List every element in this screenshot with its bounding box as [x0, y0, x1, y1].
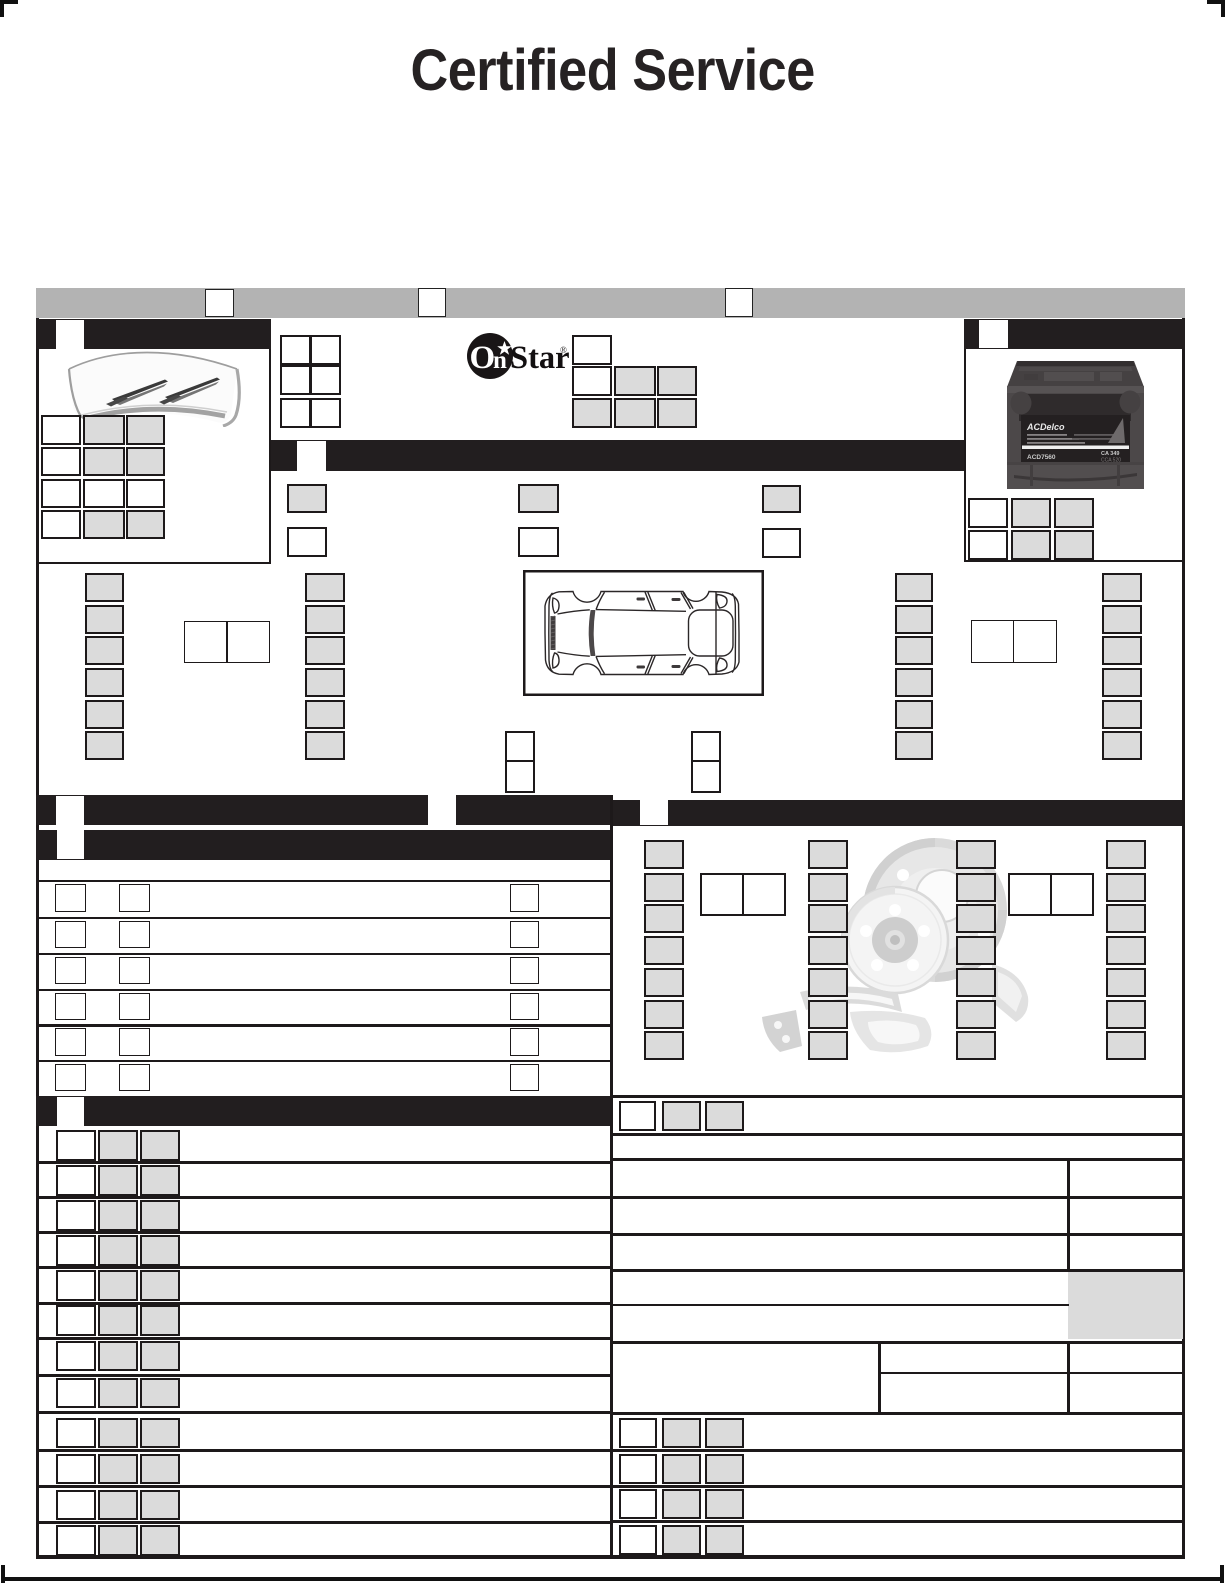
- svg-text:ACDelco: ACDelco: [1026, 422, 1065, 432]
- svg-text:CA 349: CA 349: [1101, 451, 1119, 457]
- svg-text:®: ®: [560, 345, 567, 355]
- svg-text:O: O: [470, 340, 496, 376]
- svg-text:ACD7560: ACD7560: [1027, 454, 1056, 461]
